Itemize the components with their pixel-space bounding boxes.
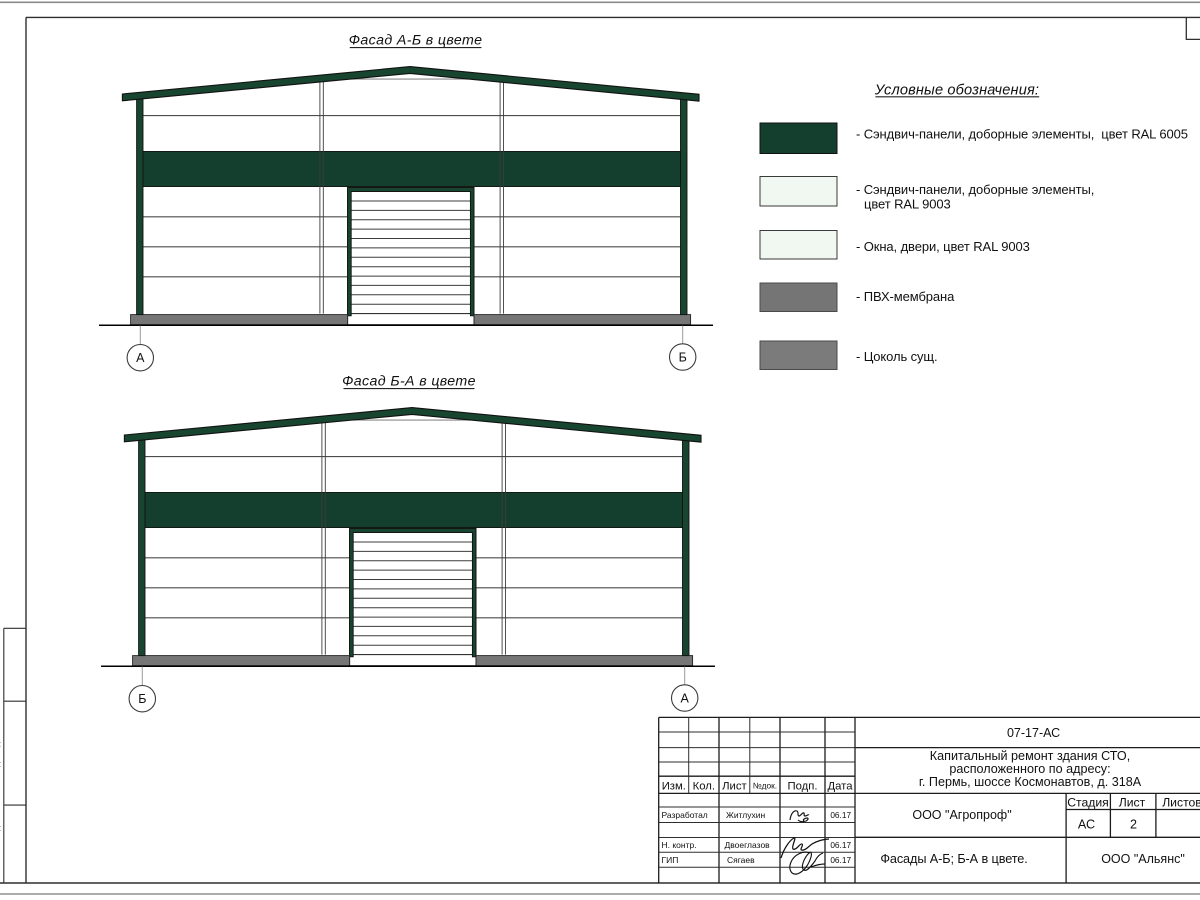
svg-text:Подп.: Подп. bbox=[787, 780, 817, 792]
svg-text:Инв. № подл.: Инв. № подл. bbox=[0, 819, 1, 869]
svg-text:- Сэндвич-панели, доборные эле: - Сэндвич-панели, доборные элементы, bbox=[856, 182, 1094, 197]
svg-text:ООО "Агропроф": ООО "Агропроф" bbox=[912, 808, 1011, 822]
svg-text:АС: АС bbox=[1078, 817, 1095, 831]
svg-text:Фасад А-Б в цвете: Фасад А-Б в цвете bbox=[349, 33, 483, 49]
svg-text:Н. контр.: Н. контр. bbox=[662, 840, 697, 850]
svg-text:- Окна, двери, цвет RAL 9003: - Окна, двери, цвет RAL 9003 bbox=[856, 239, 1030, 254]
svg-text:Б: Б bbox=[138, 692, 146, 706]
svg-text:Подп. и дата: Подп. и дата bbox=[0, 729, 1, 777]
svg-text:Разработал: Разработал bbox=[662, 810, 708, 820]
svg-text:- ПВХ-мембрана: - ПВХ-мембрана bbox=[856, 289, 955, 304]
svg-text:06.17: 06.17 bbox=[830, 855, 851, 865]
svg-text:2: 2 bbox=[1130, 817, 1137, 831]
svg-text:Кол.: Кол. bbox=[693, 780, 715, 792]
svg-text:Изм.: Изм. bbox=[662, 780, 686, 792]
svg-text:№док.: №док. bbox=[753, 781, 777, 791]
svg-text:Двоеглазов: Двоеглазов bbox=[725, 840, 771, 850]
svg-text:- Цоколь сущ.: - Цоколь сущ. bbox=[856, 349, 938, 364]
svg-text:цвет RAL 9003: цвет RAL 9003 bbox=[864, 196, 951, 211]
svg-text:А: А bbox=[681, 692, 690, 706]
svg-text:Фасад Б-А в цвете: Фасад Б-А в цвете bbox=[342, 374, 476, 390]
svg-text:ГИП: ГИП bbox=[662, 855, 679, 865]
svg-text:Б: Б bbox=[679, 351, 687, 365]
svg-text:06.17: 06.17 bbox=[830, 840, 851, 850]
svg-text:Капитальный ремонт здания СТО,: Капитальный ремонт здания СТО, bbox=[930, 749, 1130, 763]
svg-text:Условные обозначения:: Условные обозначения: bbox=[874, 82, 1039, 98]
svg-text:Стадия: Стадия bbox=[1067, 796, 1109, 810]
svg-text:Лист: Лист bbox=[722, 780, 747, 792]
svg-text:ООО "Альянс": ООО "Альянс" bbox=[1101, 852, 1185, 866]
svg-text:г. Пермь, шоссе Космонавтов, д: г. Пермь, шоссе Космонавтов, д. 318А bbox=[919, 775, 1142, 789]
svg-text:Житлухин: Житлухин bbox=[726, 810, 766, 820]
svg-text:Лист: Лист bbox=[1119, 796, 1146, 810]
svg-text:06.17: 06.17 bbox=[830, 810, 851, 820]
svg-text:Взам. инв. №: Взам. инв. № bbox=[0, 640, 1, 690]
svg-text:Фасады А-Б; Б-А в цвете.: Фасады А-Б; Б-А в цвете. bbox=[880, 852, 1027, 866]
svg-text:07-17-АС: 07-17-АС bbox=[1007, 726, 1060, 740]
svg-text:Листов: Листов bbox=[1162, 796, 1200, 810]
svg-text:А: А bbox=[136, 351, 145, 365]
svg-text:Дата: Дата bbox=[827, 780, 853, 792]
svg-text:Сягаев: Сягаев bbox=[727, 855, 755, 865]
svg-text:- Сэндвич-панели, доборные эле: - Сэндвич-панели, доборные элементы, цве… bbox=[856, 127, 1188, 142]
